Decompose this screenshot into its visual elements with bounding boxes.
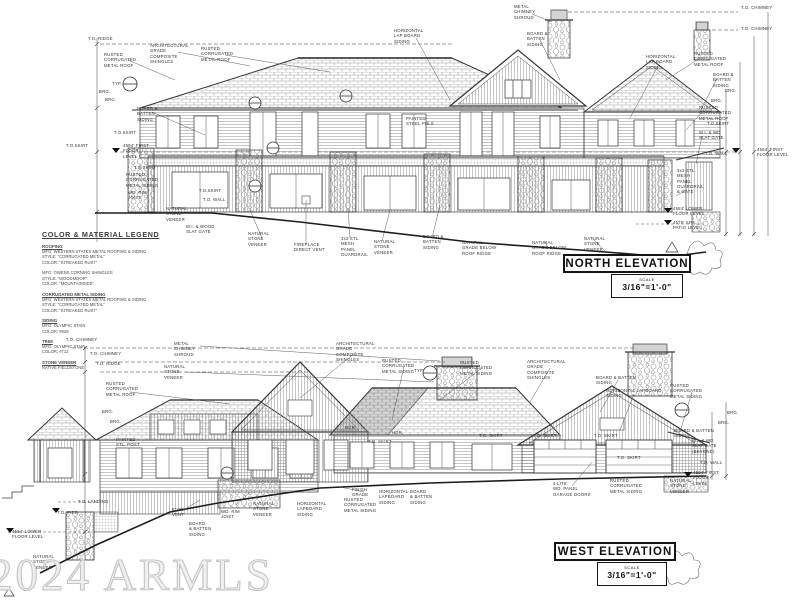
scale-value: 3/16"=1'-0": [598, 570, 666, 580]
annotation-label: HDR.: [345, 425, 356, 430]
annotation-label: 4578' SPA PATIO LEVEL: [673, 220, 702, 231]
annotation-label: T.O. WALL: [705, 151, 727, 156]
annotation-label: RUSTED CORRUGATED METAL ROOF: [201, 46, 233, 62]
annotation-label: T.O. WALL: [203, 197, 225, 202]
legend-section: SIDINGMFG: OLYMPIC STAIN COLOR: #929: [42, 318, 217, 334]
annotation-label: TYP.: [414, 368, 424, 373]
annotation-label: W.I. & WD SLAT GATE (BEYOND): [692, 438, 717, 454]
annotation-label: HDR.: [392, 430, 403, 435]
legend-body: MFG: WESTERN STATES METAL ROOFING & SIDI…: [42, 297, 217, 313]
annotation-label: BRG.: [102, 409, 113, 414]
annotation-label: T.O. PIER: [57, 510, 78, 515]
annotation-label: T.O.SKIRT: [707, 121, 729, 126]
annotation-label: RUSTED CORRUGATED METAL SIDING: [670, 383, 702, 399]
annotation-label: BRG.: [727, 410, 738, 415]
annotation-label: BRG.: [99, 89, 110, 94]
revision-cloud: [686, 241, 722, 274]
chimney-shroud: [551, 10, 567, 20]
annotation-label: NATURAL STONE VENEER: [584, 236, 605, 252]
gable-window: [505, 80, 531, 98]
annotation-label: ARCHITECTURAL GRADE COMPOSITE SHINGLES: [336, 341, 375, 362]
annotation-label: HORIZONTAL LAPBOARD SIDING: [606, 388, 662, 399]
annotation-label: RUSTED CORRUGATED METAL SIDING: [126, 172, 158, 188]
annotation-label: BOARD & BATTEN SIDING: [137, 106, 158, 122]
scale-value: 3/16"=1'-0": [612, 282, 682, 292]
annotation-label: NATURAL GRADE BELOW ROOF RIDGE: [462, 240, 496, 256]
annotation-label: ARCHITECTURAL GRADE COMPOSITE SHINGLES: [527, 359, 566, 380]
annotation-label: FIREPLACE DIRECT VENT: [294, 242, 325, 253]
annotation-label: T.O. SKIRT: [533, 433, 557, 438]
legend-body: MFG: OLYMPIC STAIN COLOR: #929: [42, 323, 217, 334]
annotation-label: T.O. CHIMNEY: [741, 5, 772, 10]
north-elevation-title: NORTH ELEVATION: [563, 254, 691, 273]
annotation-label: T.O. SKIRT: [479, 433, 503, 438]
annotation-label: HORIZONTAL LAP BOARD SIDING: [646, 54, 675, 70]
annotation-label: 4584' LOWER FLOOR LEVEL: [12, 529, 44, 540]
annotation-label: NATURAL STONE VENEER: [253, 501, 274, 517]
annotation-label: 3x3 STL. MESH PANEL GUARDRAIL & GATE: [677, 168, 704, 195]
annotation-label: TYP.: [112, 81, 122, 86]
legend-section: TRIMMFG: OLYMPIC STAIN COLOR: #712: [42, 339, 217, 355]
annotation-label: RUSTED CORRUGATED METAL ROOF: [106, 381, 138, 397]
north-scale-block: SCALE 3/16"=1'-0": [611, 274, 683, 298]
annotation-label: METAL CHIMNEY SHROUD: [514, 4, 535, 20]
west-chimney-2-shroud: [633, 344, 667, 354]
annotation-label: PAINTED STL. POST: [116, 437, 140, 448]
annotation-label: T.O. WALL: [700, 460, 722, 465]
annotation-label: BOARD & BATTEN SIDING: [189, 521, 211, 537]
legend-section: CORRUGATED METAL SIDINGMFG: WESTERN STAT…: [42, 292, 217, 313]
annotation-label: BOARD & BATTEN SIDING: [527, 31, 548, 47]
annotation-label: T.O.SKIRT: [134, 165, 156, 170]
annotation-label: NATURAL STONE VENEER: [374, 239, 395, 255]
annotation-label: NATURAL STONE VENEER: [166, 206, 187, 222]
annotation-label: RUSTED CORRUGATED METAL SIDING: [610, 478, 642, 494]
legend-body: MFG: OWENS CORNING SHINGLES STYLE: "WOOD…: [42, 270, 217, 286]
annotation-label: 4594' FIRST FLOOR LEVEL: [757, 147, 789, 158]
west-scale-block: SCALE 3/16"=1'-0": [597, 562, 667, 586]
annotation-label: WD. RIM JOIST: [128, 190, 147, 201]
annotation-label: RUSTED CORRUGATED METAL ROOF: [699, 105, 731, 121]
annotation-label: NATURAL GRADE BELOW ROOF RIDGE: [532, 240, 566, 256]
annotation-label: T.O. SKIRT: [617, 455, 641, 460]
annotation-label: BRG.: [110, 419, 121, 424]
annotation-label: BOARD & BATTEN SIDING: [713, 72, 734, 88]
to-chimney-lines: [568, 12, 738, 30]
annotation-label: HORIZONTAL LAPBOARD SIDING: [297, 501, 326, 517]
annotation-label: 4584' LOWER FLOOR LEVEL: [673, 206, 705, 217]
annotation-label: HORIZONTAL LAP BOARD SIDING: [394, 28, 423, 44]
entry-gable: [28, 408, 96, 440]
elevation-sheet: T.O. RIDGERUSTED CORRUGATED METAL ROOFAR…: [0, 0, 804, 600]
annotation-label: T.O. CHIMNEY: [741, 26, 772, 31]
annotation-label: 4594' FIRST FLOOR LEVEL: [123, 143, 149, 159]
annotation-label: BRG.: [725, 88, 736, 93]
annotation-label: RUSTED CORRUGATED METAL SIDING: [382, 358, 414, 374]
west-elevation-title: WEST ELEVATION: [554, 542, 676, 561]
annotation-label: 8"x8" VENT: [172, 507, 184, 518]
legend-section: STONE VENEERNATIVE FIELDSTONE: [42, 360, 217, 370]
legend-body: MFG: WESTERN STATES METAL ROOFING & SIDI…: [42, 249, 217, 265]
legend-section: MFG: OWENS CORNING SHINGLES STYLE: "WOOD…: [42, 270, 217, 286]
annotation-label: RUSTED CORRUGATED METAL ROOF: [694, 51, 726, 67]
annotation-label: 4594' FIRST FLOOR LEVEL: [693, 470, 719, 486]
annotation-label: T.O. LANDING: [78, 499, 109, 504]
annotation-label: RUSTED CORRUGATED METAL ROOF: [104, 52, 136, 68]
legend-section: ROOFINGMFG: WESTERN STATES METAL ROOFING…: [42, 244, 217, 265]
annotation-label: T.O.SKIRT: [66, 143, 88, 148]
dim-lines-right: [726, 12, 768, 236]
annotation-label: WD. RIM JOIST: [221, 509, 240, 520]
chimney: [548, 20, 570, 58]
annotation-label: ARCHITECTURAL GRADE COMPOSITE SHINGLES: [150, 43, 189, 64]
legend-body: NATIVE FIELDSTONE: [42, 365, 217, 370]
legend-body: MFG: OLYMPIC STAIN COLOR: #712: [42, 344, 217, 355]
armls-watermark: 2024 ARMLS: [0, 549, 274, 600]
annotation-label: BOARD & BATTEN SIDING: [596, 375, 636, 386]
annotation-label: BRG.: [105, 97, 116, 102]
annotation-label: BRG.: [711, 98, 722, 103]
annotation-label: 4-LITE WD. PANEL GARAGE DOORS: [553, 481, 591, 497]
annotation-label: BOARD & BATTEN SIDING: [423, 234, 444, 250]
annotation-label: NATURAL STONE VENEER: [670, 478, 691, 494]
annotation-label: RUSTED CORRUGATED METAL SIDING: [460, 360, 492, 376]
material-legend: COLOR & MATERIAL LEGEND ROOFINGMFG: WEST…: [42, 230, 217, 375]
annotation-label: W.I. & WD SLAT GATE: [699, 130, 724, 141]
annotation-label: RUSTED CORRUGATED METAL SIDING: [344, 497, 376, 513]
annotation-label: T.O. SKIRT: [594, 433, 618, 438]
revision-triangle: [666, 242, 678, 252]
annotation-label: BRG.: [718, 420, 729, 425]
annotation-label: T.O. SKIRT: [368, 439, 392, 444]
annotation-label: T.O. RIDGE: [88, 36, 113, 41]
annotation-label: 3x3 STL. MESH PANEL GUARDRAIL: [341, 236, 368, 257]
annotation-label: T.O.SKIRT: [114, 130, 136, 135]
annotation-label: BOARD & BATTEN SIDING: [410, 489, 432, 505]
chimney-2-shroud: [696, 22, 708, 30]
entry-steps: [2, 486, 34, 498]
annotation-label: PAINTED STEEL PNLS: [406, 116, 434, 127]
deck-guardrail: [148, 156, 664, 166]
pier-guardrail: [94, 512, 118, 532]
legend-title: COLOR & MATERIAL LEGEND: [42, 230, 217, 239]
annotation-label: HORIZONTAL LAPBOARD SIDING: [379, 489, 408, 505]
annotation-label: NATURAL STONE VENEER: [248, 231, 269, 247]
annotation-label: T.O.SKIRT: [199, 188, 221, 193]
